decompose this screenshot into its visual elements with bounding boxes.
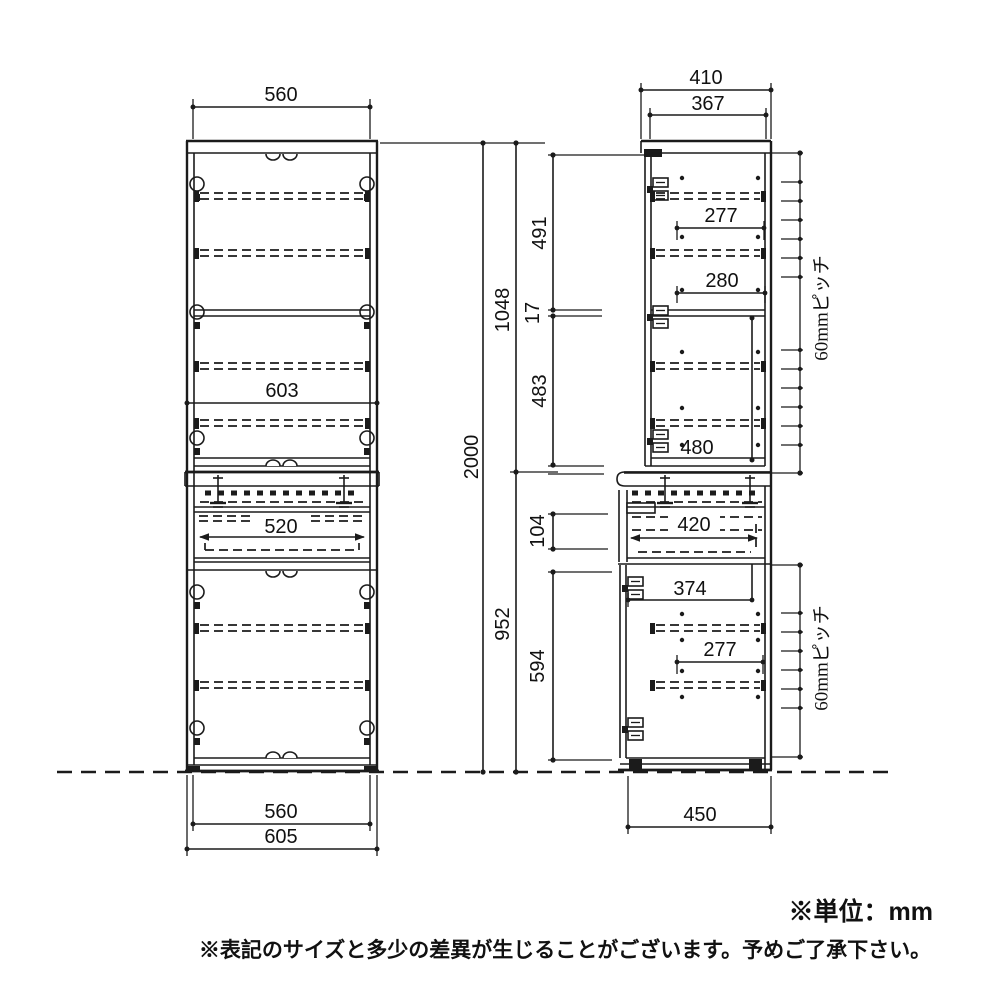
side-dimensions: 410 367 277 280 480: [626, 67, 774, 834]
hinge-circle-icon: [360, 721, 374, 745]
dim-height-upper-top: 491: [529, 216, 551, 249]
dim-height-total: 2000: [461, 435, 483, 480]
notes: ※単位：mm ※表記のサイズと多少の差異が生じることがございます。予めご了承下さ…: [199, 897, 933, 962]
pitch-column-upper: 60mmピッチ: [772, 150, 833, 475]
pin-holes-icon: [680, 350, 760, 354]
hinge-circle-icon: [190, 721, 204, 745]
shelf-dashed-icon: [650, 680, 766, 691]
damper-icon: [266, 752, 297, 758]
dim-drawer-front-height: 104: [527, 514, 549, 547]
shelf-dashed-icon: [650, 248, 766, 259]
dim-side-shelf2: 280: [705, 270, 738, 292]
dim-height-upper-unit: 1048: [492, 288, 514, 333]
drawing-canvas: 560 603 520 560 605: [0, 0, 1000, 1000]
hinge-circle-icon: [190, 431, 204, 455]
size-disclaimer: ※表記のサイズと多少の差異が生じることがございます。予めご了承下さい。: [199, 938, 931, 962]
shelf-dashed-icon: [650, 361, 766, 372]
hinge-icon: [647, 430, 668, 452]
front-adjustable-shelves: [194, 191, 370, 691]
dim-lower-door-height: 594: [527, 649, 549, 682]
shelf-dashed-icon: [194, 361, 370, 372]
pin-holes-icon: [680, 669, 760, 673]
damper-icon: [266, 571, 297, 577]
hinge-circle-icon: [360, 177, 374, 201]
furniture-dimension-drawing: 560 603 520 560 605: [0, 0, 1000, 1000]
dim-front-drawer-width: 520: [264, 516, 297, 538]
dim-height-lower-unit: 952: [492, 607, 514, 640]
dim-side-drawer-depth: 420: [677, 514, 710, 536]
hinge-circle-icon: [190, 585, 204, 609]
shelf-dashed-icon: [194, 191, 370, 202]
hinge-icon: [622, 718, 643, 740]
dim-side-open-height: 480: [680, 437, 713, 459]
damper-icon: [266, 460, 297, 466]
pin-holes-icon: [680, 406, 760, 410]
dim-side-lower-shelf: 277: [703, 639, 736, 661]
hinge-circle-icon: [190, 177, 204, 201]
front-damper-bumps: [266, 154, 297, 758]
hinge-circle-icon: [360, 585, 374, 609]
shelf-dashed-icon: [194, 680, 370, 691]
dim-side-shelf1: 277: [704, 205, 737, 227]
dim-height-upper-bottom: 483: [529, 374, 551, 407]
dim-side-depth-top: 410: [689, 67, 722, 89]
hinge-circle-icon: [360, 305, 374, 329]
dim-side-lower-inner-depth: 374: [673, 578, 706, 600]
hinge-circle-icon: [190, 305, 204, 329]
front-view: 560 603 520 560 605: [185, 84, 380, 856]
dim-side-depth-bottom: 450: [683, 804, 716, 826]
dim-side-depth-top-inner: 367: [691, 93, 724, 115]
front-dimensions: 560 603 520 560 605: [185, 84, 380, 856]
pitch-label-lower: 60mmピッチ: [812, 605, 833, 711]
dim-front-width-carcass: 603: [265, 380, 298, 402]
dim-front-width-top: 560: [264, 84, 297, 106]
shelf-dashed-icon: [650, 418, 766, 429]
hinge-icon: [622, 577, 643, 599]
hinge-circle-icon: [360, 431, 374, 455]
hinge-icon: [647, 306, 668, 328]
damper-icon: [266, 154, 297, 160]
front-carcass: [185, 141, 379, 771]
dim-shelf-thickness: 17: [522, 302, 544, 324]
dim-front-width-bottom-inner: 560: [264, 801, 297, 823]
side-view: 410 367 277 280 480: [617, 67, 833, 834]
shelf-dashed-icon: [650, 623, 766, 634]
pitch-column-lower: 60mmピッチ: [772, 562, 833, 759]
shelf-dashed-icon: [194, 623, 370, 634]
pin-holes-icon: [680, 176, 760, 180]
shelf-dashed-icon: [194, 418, 370, 429]
dim-front-width-bottom-outer: 605: [264, 826, 297, 848]
pin-holes-icon: [680, 612, 760, 616]
front-hinge-circles: [190, 177, 374, 745]
pitch-label-upper: 60mmピッチ: [812, 255, 833, 361]
pin-holes-icon: [680, 235, 760, 239]
unit-note: ※単位：mm: [789, 897, 933, 926]
pin-holes-icon: [680, 695, 760, 699]
shelf-dashed-icon: [194, 248, 370, 259]
height-dimensions: 2000 1048 952 491 17 483 104 594: [380, 140, 645, 774]
